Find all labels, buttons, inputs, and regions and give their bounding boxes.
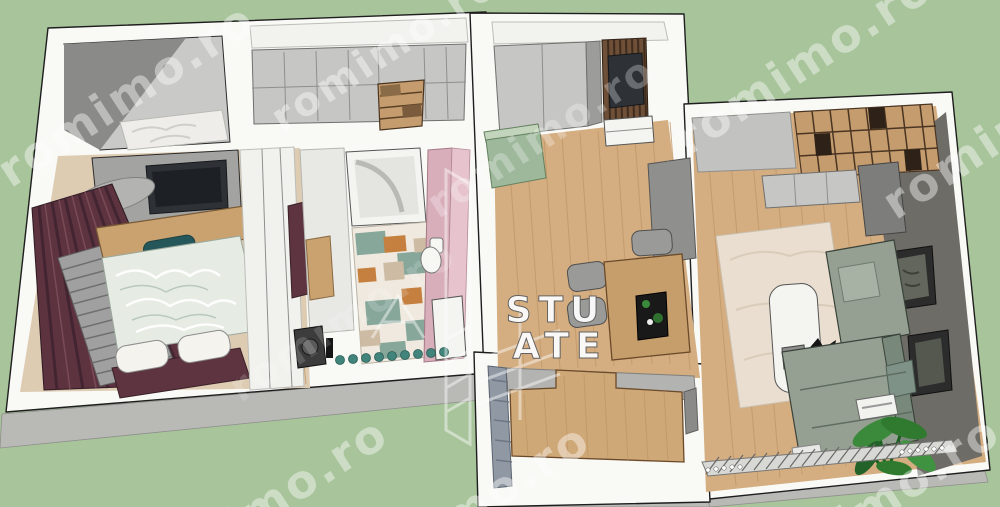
- floorplan-render: romimo.ro romimo.ro romimo.ro romimo.ro …: [0, 0, 1000, 507]
- shower: [346, 148, 426, 226]
- logo-text-line2: ATE: [512, 326, 607, 367]
- table-centerpiece: [636, 292, 668, 340]
- dining-chair: [566, 260, 607, 292]
- logo-text-line1: STU: [506, 290, 607, 331]
- vanity-cabinet: [432, 296, 466, 360]
- bedroom-tv: [146, 160, 228, 214]
- hall-console: [604, 116, 654, 146]
- dining-chair: [631, 229, 673, 257]
- sideboard: [762, 170, 860, 208]
